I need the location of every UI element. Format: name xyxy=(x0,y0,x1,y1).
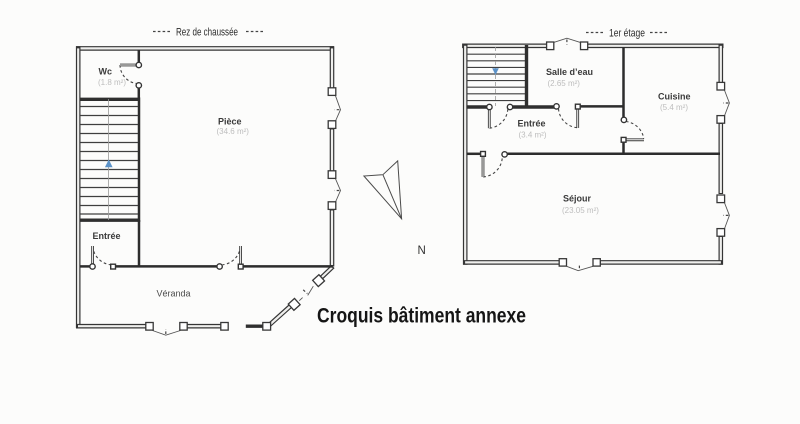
svg-text:Véranda: Véranda xyxy=(157,289,191,299)
svg-text:Pièce: Pièce xyxy=(218,117,242,127)
svg-text:Wc: Wc xyxy=(99,67,113,77)
svg-text:Croquis bâtiment annexe: Croquis bâtiment annexe xyxy=(317,305,526,328)
svg-text:N: N xyxy=(418,245,426,257)
svg-text:(1.8 m²): (1.8 m²) xyxy=(98,78,126,87)
svg-text:(34.6 m²): (34.6 m²) xyxy=(217,127,250,136)
svg-text:Séjour: Séjour xyxy=(563,194,592,204)
svg-text:Salle d’eau: Salle d’eau xyxy=(546,67,593,77)
svg-text:Entrée: Entrée xyxy=(93,231,121,241)
svg-text:(5.4 m²): (5.4 m²) xyxy=(660,103,688,112)
svg-text:Cuisine: Cuisine xyxy=(658,92,691,102)
svg-text:Entrée: Entrée xyxy=(518,119,546,129)
svg-text:1er étage: 1er étage xyxy=(609,28,645,40)
svg-text:(2.65 m²): (2.65 m²) xyxy=(548,79,581,88)
svg-text:Rez de chaussée: Rez de chaussée xyxy=(176,27,238,39)
svg-text:(3.4 m²): (3.4 m²) xyxy=(519,131,547,140)
svg-text:(23.05 m²): (23.05 m²) xyxy=(562,206,599,215)
